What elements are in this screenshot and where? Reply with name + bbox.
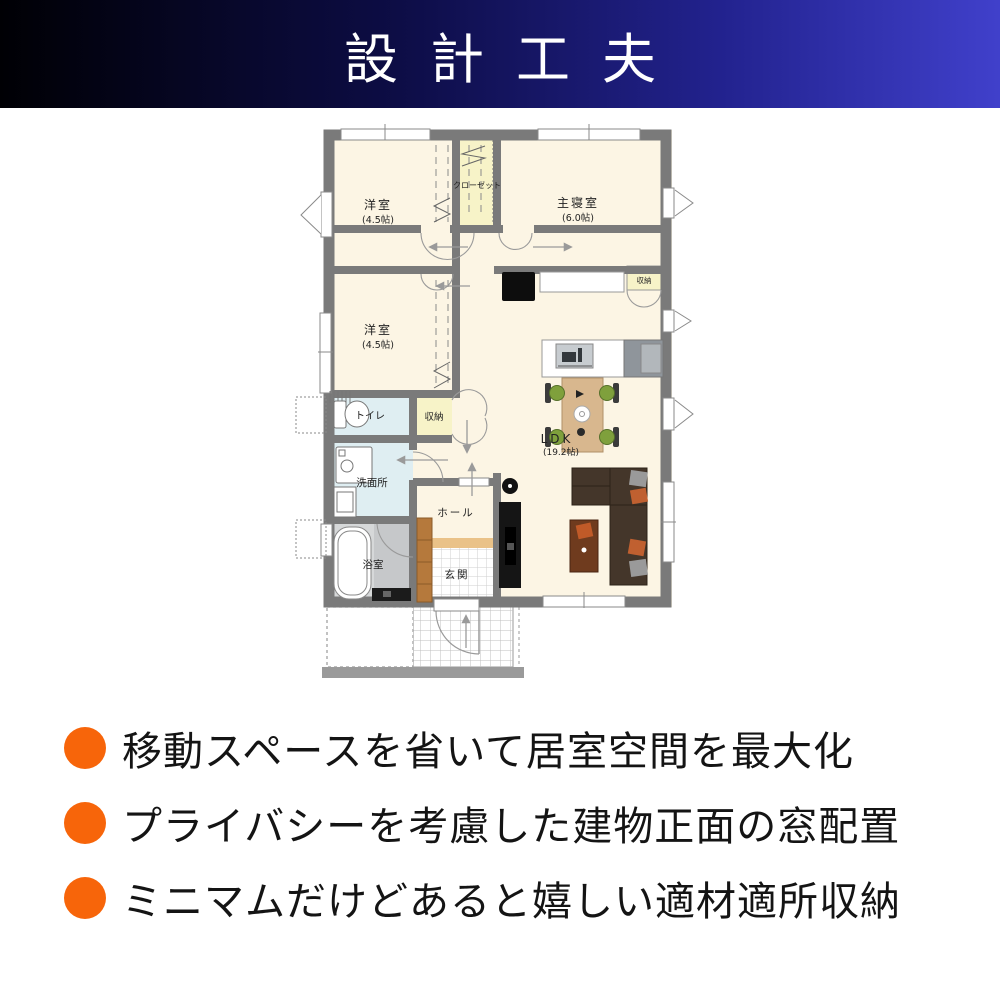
window-bedroom2-left [320,313,331,393]
window-ldk-right [663,398,674,430]
label-washroom: 洗面所 [356,477,388,489]
window-swing-left1 [301,195,321,234]
coffee-table [570,520,598,572]
window-kitchen-right [663,310,674,332]
shoe-cabinet [417,518,432,602]
window-swing-right3 [675,400,693,428]
bath-vanity [372,588,411,601]
window-master-right [663,188,674,218]
porch-step [322,667,524,678]
tv-counter-shelf [540,272,624,292]
label-ldk-size: (19.2帖) [543,446,579,458]
label-closet: クローゼット [453,180,501,190]
tv-board [499,502,521,588]
window-swing-right1 [675,190,693,216]
feature-item-1: 移動スペースを省いて居室空間を最大化 [64,722,964,774]
label-toilet: トイレ [355,411,385,422]
window-swing-right2 [675,311,691,331]
bullet-dot-icon [64,802,106,844]
speaker [502,478,518,494]
bath-vanity-sink [383,591,391,597]
toilet-window-dashed [296,397,326,433]
label-hall-storage: 収納 [424,411,443,423]
label-master-bedroom: 主寝室 [557,195,599,210]
wall-tv [502,272,535,301]
feature-text-3: ミニマムだけどあると嬉しい適材適所収納 [122,869,901,927]
entrance-step [432,538,493,548]
feature-text-2: プライバシーを考慮した建物正面の窓配置 [122,794,900,852]
bullet-dot-icon [64,877,106,919]
hall-sliding-door [459,478,489,486]
label-hall: ホール [437,507,475,519]
window-bedroom1-left [321,192,332,237]
label-ldk-storage: 収納 [637,275,652,285]
refrigerator [624,340,663,377]
feature-item-2: プライバシーを考慮した建物正面の窓配置 [64,797,964,849]
label-ldk: LDK [541,432,574,446]
entrance-door [434,599,479,611]
kitchen-counter [542,340,624,377]
porch [322,607,524,678]
label-entrance: 玄関 [445,568,470,581]
terrace-dashed [327,607,413,667]
label-master-size: (6.0帖) [562,212,594,224]
page: 設計工夫 [0,0,1000,1000]
label-bedroom1-size: (4.5帖) [362,214,394,226]
label-bedroom2: 洋室 [364,322,392,337]
bullet-dot-icon [64,727,106,769]
washstand [334,487,356,517]
porch-tile-grid [413,607,513,667]
label-bedroom1: 洋室 [364,197,392,212]
label-bathroom: 浴室 [363,558,384,571]
feature-text-1: 移動スペースを省いて居室空間を最大化 [122,719,854,777]
feature-item-3: ミニマムだけどあると嬉しい適材適所収納 [64,872,964,924]
label-bedroom2-size: (4.5帖) [362,339,394,351]
